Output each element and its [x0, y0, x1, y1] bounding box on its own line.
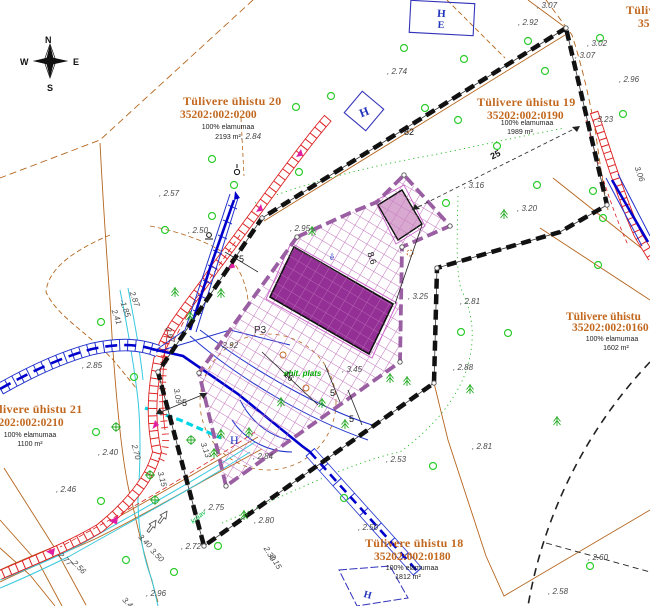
- svg-text:, 2.92: , 2.92: [218, 341, 239, 350]
- svg-text:N: N: [45, 35, 52, 45]
- svg-text:, 2.81: , 2.81: [460, 297, 480, 306]
- svg-text:, 2.81: , 2.81: [472, 442, 492, 451]
- svg-text:, 3.07: , 3.07: [537, 1, 558, 10]
- svg-text:35202:002:0160: 35202:002:0160: [572, 322, 649, 334]
- svg-text:100% elamumaa: 100% elamumaa: [501, 120, 554, 127]
- svg-text:, 2.96: , 2.96: [146, 589, 167, 598]
- svg-text:Tüliv: Tüliv: [626, 3, 650, 17]
- svg-text:H: H: [437, 8, 447, 20]
- svg-text:100% elamumaa: 100% elamumaa: [202, 124, 255, 131]
- svg-text:H: H: [230, 433, 239, 447]
- svg-text:100% elamumaa: 100% elamumaa: [386, 565, 439, 572]
- svg-text:1602 m²: 1602 m²: [603, 345, 629, 352]
- svg-text:35: 35: [638, 18, 650, 30]
- svg-text:1989 m²: 1989 m²: [507, 129, 533, 136]
- svg-text:1100 m²: 1100 m²: [17, 441, 43, 448]
- svg-text:, 2.95: , 2.95: [290, 224, 311, 233]
- svg-text:, 2.40: , 2.40: [98, 448, 119, 457]
- svg-text:S: S: [47, 83, 53, 93]
- svg-text:, 3.02: , 3.02: [587, 39, 608, 48]
- svg-text:1812 m²: 1812 m²: [395, 574, 421, 581]
- svg-text:, 3.25: , 3.25: [408, 292, 429, 301]
- svg-text:5: 5: [349, 414, 354, 424]
- svg-text:, 2.80: , 2.80: [254, 516, 275, 525]
- svg-text:, 2.72: , 2.72: [181, 542, 202, 551]
- svg-text:, 3.16: , 3.16: [464, 181, 485, 190]
- svg-text:100% elamumaa: 100% elamumaa: [4, 432, 57, 439]
- svg-text:, 2.50: , 2.50: [188, 226, 209, 235]
- svg-text:E: E: [73, 57, 79, 67]
- svg-text:, 2.60: , 2.60: [588, 553, 609, 562]
- svg-text:, 3.07: , 3.07: [575, 51, 596, 60]
- svg-text:100% elamumaa: 100% elamumaa: [586, 336, 639, 343]
- svg-text:5: 5: [239, 254, 244, 264]
- svg-text:, 2.84: , 2.84: [241, 132, 262, 141]
- svg-text:35202:002:0180: 35202:002:0180: [374, 551, 451, 563]
- svg-text:, 3.45: , 3.45: [342, 365, 363, 374]
- svg-text:35202:002:0210: 35202:002:0210: [0, 417, 64, 429]
- svg-text:, 3.23: , 3.23: [593, 115, 614, 124]
- svg-text:, 2.75: , 2.75: [204, 503, 225, 512]
- svg-text:, 2.96: , 2.96: [619, 75, 640, 84]
- svg-text:E: E: [437, 20, 445, 31]
- svg-text:ê: ê: [330, 252, 334, 262]
- svg-text:Tülivere ühistu 21: Tülivere ühistu 21: [0, 402, 83, 416]
- svg-text:, 2.88: , 2.88: [453, 363, 474, 372]
- svg-text:Tülivere ühistu 19: Tülivere ühistu 19: [477, 95, 576, 109]
- svg-text:, 2.46: , 2.46: [56, 485, 77, 494]
- svg-text:, 2.50: , 2.50: [358, 523, 379, 532]
- svg-text:, 2.58: , 2.58: [548, 587, 569, 596]
- svg-text:, 2.53: , 2.53: [386, 455, 407, 464]
- svg-text:W: W: [20, 57, 29, 67]
- svg-text:, 2.85: , 2.85: [82, 361, 103, 370]
- svg-text:5: 5: [330, 388, 335, 398]
- svg-text:, 2.92: , 2.92: [518, 18, 539, 27]
- svg-text:, 2.74: , 2.74: [387, 67, 408, 76]
- svg-text:, 2.84: , 2.84: [253, 452, 274, 461]
- svg-text:Tülivere ühistu 18: Tülivere ühistu 18: [365, 536, 464, 550]
- svg-text:35202:002:0200: 35202:002:0200: [180, 109, 257, 121]
- svg-text:Tülivere ühistu 20: Tülivere ühistu 20: [183, 94, 282, 108]
- svg-text:2193 m²: 2193 m²: [215, 134, 241, 141]
- svg-text:P3: P3: [254, 325, 267, 336]
- svg-text:82: 82: [404, 127, 414, 137]
- svg-text:, 3.20: , 3.20: [517, 204, 538, 213]
- svg-text:, 2.57: , 2.57: [159, 189, 180, 198]
